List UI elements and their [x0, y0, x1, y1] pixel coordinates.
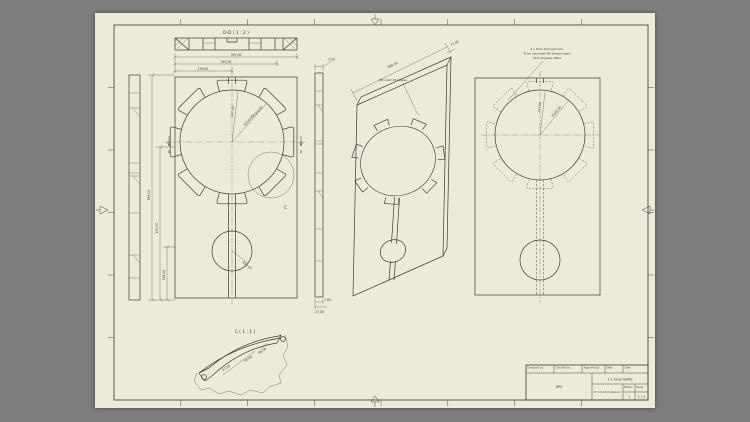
rear-note-line2: To be used with M5 thread insert — [522, 52, 571, 56]
dim-detail-2: R5,00 — [257, 347, 267, 355]
rear-view: 147,50 R160,00 4 x 4mm through hole. To … — [475, 47, 600, 303]
detail-ref: C — [284, 205, 287, 211]
dim-detail-3: 45,00 — [243, 355, 253, 363]
dim-right-radial-1: 147,50 — [537, 102, 542, 113]
iso-note: M8 nuts/ 45 degree — [379, 78, 407, 82]
tb-checked-by: Checked by — [556, 366, 571, 370]
rear-note-line3: 22,5 degrees offset — [533, 56, 562, 60]
title-block: Designed by Checked by Approved by Date … — [526, 365, 648, 400]
dim-strip-top: 7,50 — [328, 58, 335, 62]
centering-mark-bottom — [371, 396, 379, 407]
dim-heights: 698,00 470,00 166,00 — [147, 74, 175, 302]
dim-radial-1: 147,50 — [230, 106, 235, 117]
dim-radial-3: R160,00 — [252, 105, 264, 117]
tb-edition-h: Edition — [624, 385, 633, 389]
tb-edition: 1 — [628, 395, 630, 399]
tb-project: HP5 — [556, 385, 563, 389]
dim-detail-1: 67,50 — [221, 364, 231, 372]
drawing-svg: D-D ( 1 : 2 ) 395,00 325,00 178,00 — [95, 13, 655, 408]
section-label: D-D ( 1 : 2 ) — [223, 30, 249, 36]
dim-total-width: 395,00 — [231, 53, 242, 57]
tb-date: Date — [607, 366, 613, 370]
dim-iso-len: 698,00 — [387, 61, 399, 69]
rear-note-line1: 4 x 4mm through hole. — [530, 47, 563, 51]
tb-sheet: 1 / 1 — [638, 395, 645, 399]
dim-strip-b2: 27,00 — [315, 310, 324, 314]
dim-strip-b1: 7,64 — [324, 298, 331, 302]
isometric-view: 698,00 27,00 M8 nuts/ 45 degree — [337, 40, 459, 296]
centering-mark-top — [371, 14, 379, 25]
tb-sheet-h: Sheet — [636, 385, 643, 389]
detail-circle — [248, 152, 294, 198]
drawing-sheet[interactable]: D-D ( 1 : 2 ) 395,00 325,00 178,00 — [95, 13, 655, 408]
front-view: 147,50 R150,00 R160,00 R50,00 D D C — [165, 71, 305, 305]
right-side-strip-view: 7,50 7,64 27,00 — [315, 58, 335, 315]
dim-widths: 395,00 325,00 178,00 — [174, 53, 299, 73]
left-side-view — [129, 75, 140, 300]
detail-label: C ( 1 : 1 ) — [235, 329, 256, 335]
tb-designed-by: Designed by — [528, 366, 544, 370]
dim-right-radial-2: R160,00 — [551, 105, 562, 118]
tb-date2: Date — [625, 366, 631, 370]
dim-pendulum-r: R50,00 — [241, 261, 252, 271]
tb-material: 27 mm birch plywood — [594, 390, 622, 394]
dim-width-2: 325,00 — [221, 60, 232, 64]
application-canvas: D-D ( 1 : 2 ) 395,00 325,00 178,00 — [0, 0, 750, 422]
dim-iso-thk: 27,00 — [450, 40, 460, 47]
section-view-dd: D-D ( 1 : 2 ) — [175, 30, 297, 50]
sheet-border — [96, 14, 654, 407]
tb-title: 2 x Inner baffle — [607, 378, 632, 382]
section-ref-right: D — [300, 150, 303, 154]
detail-view-c: C ( 1 : 1 ) 67,50 45,00 R5,00 — [194, 329, 288, 395]
dim-height-3: 166,00 — [162, 270, 166, 281]
centering-mark-left — [96, 206, 108, 214]
dim-height-total: 698,00 — [147, 190, 151, 201]
dim-height-2: 470,00 — [155, 223, 159, 234]
dim-width-3: 178,00 — [198, 67, 209, 71]
iso-gear-hole — [337, 103, 458, 218]
tb-approved-by: Approved by — [584, 366, 600, 370]
